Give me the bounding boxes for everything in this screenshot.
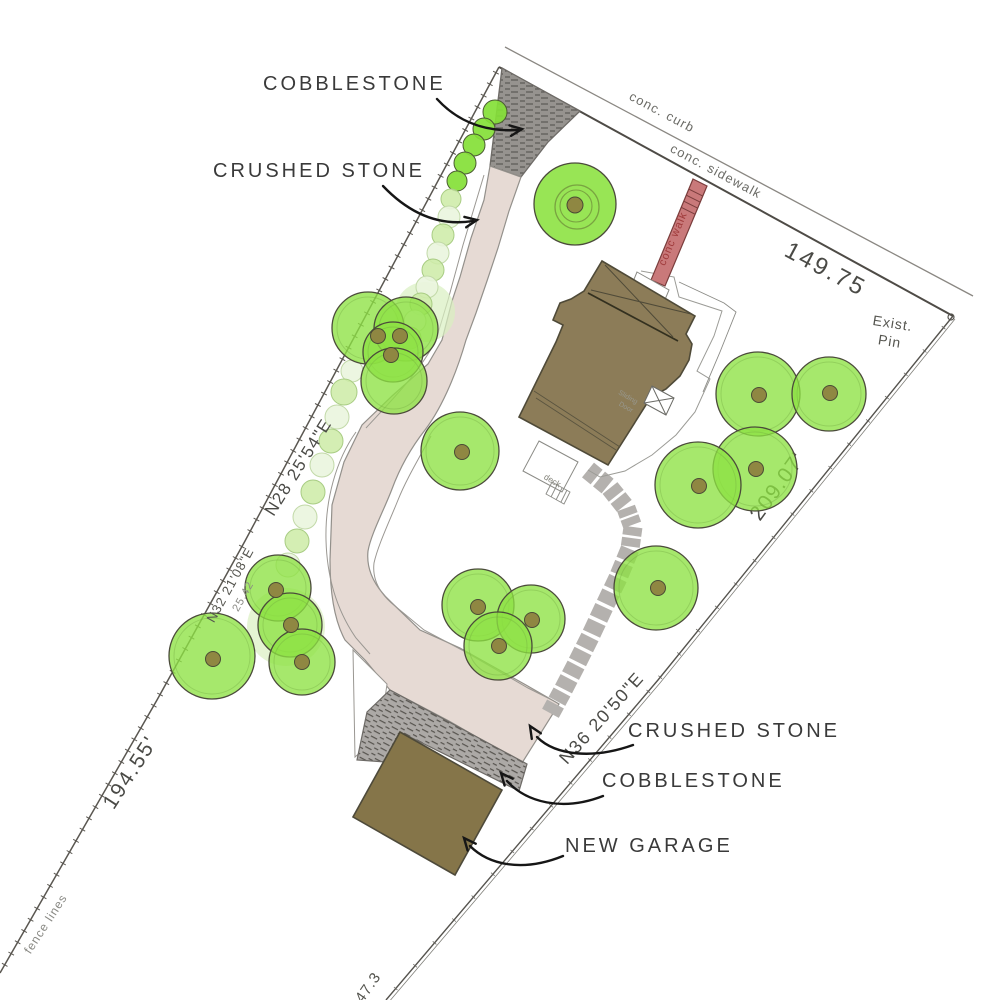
svg-text:CRUSHED STONE: CRUSHED STONE <box>213 160 425 182</box>
svg-text:NEW GARAGE: NEW GARAGE <box>565 835 733 857</box>
svg-text:COBBLESTONE: COBBLESTONE <box>602 770 785 792</box>
svg-text:CRUSHED STONE: CRUSHED STONE <box>628 720 840 742</box>
svg-text:COBBLESTONE: COBBLESTONE <box>263 73 446 95</box>
